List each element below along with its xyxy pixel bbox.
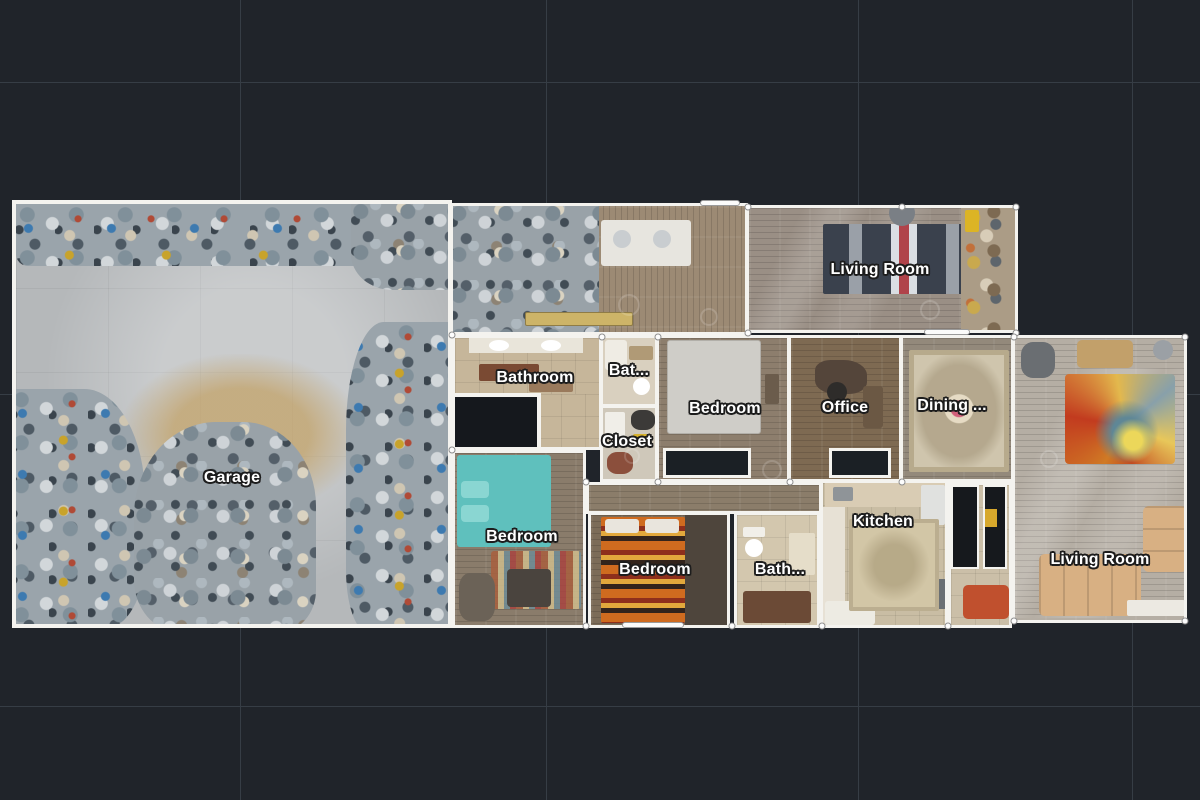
swirl-rug xyxy=(1065,374,1175,464)
watermark-ring xyxy=(1040,450,1058,468)
pillow xyxy=(461,481,489,498)
vertex-handle xyxy=(945,623,952,630)
dresser xyxy=(765,374,779,404)
table xyxy=(1077,340,1133,368)
tool-box xyxy=(965,210,979,232)
bed xyxy=(667,340,761,434)
vertex-handle xyxy=(729,623,736,630)
storage-clutter xyxy=(346,322,452,628)
vertex-handle xyxy=(449,332,456,339)
sink xyxy=(541,340,561,351)
storage-clutter xyxy=(134,422,316,628)
grid-line xyxy=(0,706,1200,707)
watermark-ring xyxy=(700,308,718,326)
room-garage[interactable] xyxy=(12,200,452,628)
room-label-bathroom: Bathroom xyxy=(496,369,573,387)
room-label-office: Office xyxy=(822,399,869,417)
closet-void xyxy=(829,448,891,478)
vertex-handle xyxy=(1011,618,1018,625)
stored-items xyxy=(985,509,997,527)
closet-void xyxy=(663,448,751,478)
room-bathroom[interactable] xyxy=(452,335,602,450)
vertex-handle xyxy=(1011,334,1018,341)
vertex-handle xyxy=(583,479,590,486)
room-kitchen[interactable] xyxy=(820,480,948,628)
pillow xyxy=(645,519,679,533)
vertex-handle xyxy=(899,204,906,211)
vertex-handle xyxy=(819,623,826,630)
toilet xyxy=(745,539,763,557)
watermark-ring xyxy=(762,460,782,480)
sink xyxy=(489,340,509,351)
work-bench xyxy=(525,312,633,326)
room-label-bathroom-small-bottom: Bath... xyxy=(755,561,805,579)
room-label-bedroom-middle: Bedroom xyxy=(689,400,761,418)
shelf xyxy=(1127,600,1185,616)
bath-mat xyxy=(743,591,811,623)
wall-segment xyxy=(537,393,541,447)
storage-clutter xyxy=(351,200,452,290)
door-marker xyxy=(700,200,740,206)
hallway[interactable] xyxy=(586,482,822,514)
sofa xyxy=(1143,506,1187,572)
toilet xyxy=(633,378,650,395)
floorplan-viewport: Living Room Bathroom Bat... Closet Bedro… xyxy=(0,0,1200,800)
toilet-tank xyxy=(743,527,765,537)
armchair xyxy=(507,569,551,607)
closet-void xyxy=(983,485,1007,569)
room-label-living-room-bottom: Living Room xyxy=(1050,551,1149,569)
grid-line xyxy=(0,82,1200,83)
closet-void xyxy=(951,485,979,569)
storage-clutter xyxy=(12,389,145,628)
room-label-kitchen: Kitchen xyxy=(853,513,913,531)
kitchen-rug xyxy=(849,519,939,611)
vertex-handle xyxy=(745,204,752,211)
room-label-bathroom-small-top: Bat... xyxy=(609,362,649,380)
cooktop xyxy=(833,487,853,501)
door-marker xyxy=(622,622,684,628)
vertex-handle xyxy=(655,479,662,486)
armchair xyxy=(1021,342,1055,378)
room-label-closet: Closet xyxy=(602,433,652,451)
room-label-garage: Garage xyxy=(204,469,260,487)
stored-items xyxy=(631,410,655,430)
pantry[interactable] xyxy=(948,482,1012,628)
vertex-handle xyxy=(583,623,590,630)
wall-segment xyxy=(455,393,541,397)
pillow xyxy=(605,519,639,533)
vertex-handle xyxy=(787,479,794,486)
room-living-room-bottom[interactable] xyxy=(1012,335,1187,623)
pillow xyxy=(461,505,489,522)
appliance-knob xyxy=(653,230,671,248)
vertex-handle xyxy=(1182,618,1189,625)
counter xyxy=(629,346,653,360)
room-label-dining-room: Dining ... xyxy=(917,397,987,415)
room-label-bedroom-bottom-left: Bedroom xyxy=(486,528,558,546)
door-marker xyxy=(924,329,970,335)
pet-bed xyxy=(963,585,1009,619)
appliance-knob xyxy=(613,230,631,248)
vertex-handle xyxy=(1182,334,1189,341)
vanity-counter xyxy=(469,338,583,353)
vertex-handle xyxy=(745,330,752,337)
room-label-bedroom-bottom-middle: Bedroom xyxy=(619,561,691,579)
watermark-ring xyxy=(618,294,640,316)
watermark-ring xyxy=(920,300,940,320)
vertex-handle xyxy=(449,447,456,454)
vertex-handle xyxy=(899,479,906,486)
vertex-handle xyxy=(655,334,662,341)
bathroom-floor xyxy=(537,394,599,447)
dark-floor xyxy=(685,515,729,627)
furniture xyxy=(459,573,495,621)
vertex-handle xyxy=(1013,204,1020,211)
vertex-handle xyxy=(599,334,606,341)
stool xyxy=(1153,340,1173,360)
room-label-living-room-top: Living Room xyxy=(830,261,929,279)
